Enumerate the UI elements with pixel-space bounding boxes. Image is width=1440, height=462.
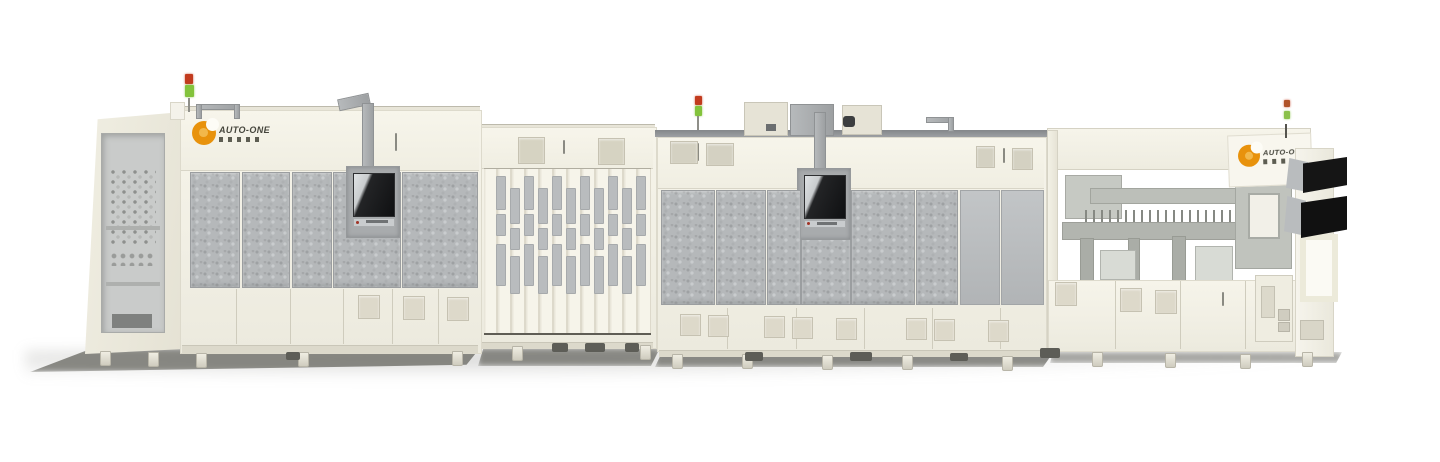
- panel-handle: [1003, 148, 1005, 163]
- slat-window: [538, 228, 548, 250]
- mesh-panel: [716, 190, 766, 305]
- machine-foot: [452, 351, 463, 366]
- slat-window: [524, 176, 534, 210]
- mesh-panel: [916, 190, 958, 305]
- side-window-rack: [110, 169, 156, 244]
- slat-window: [552, 244, 562, 286]
- signal-light-red: [1284, 100, 1290, 107]
- roof-motor: [843, 116, 855, 127]
- signal-light-red: [185, 74, 193, 84]
- top-vent: [706, 143, 734, 166]
- machine-foot: [902, 355, 913, 370]
- cabinet-seam: [290, 289, 291, 344]
- signal-tower-d: [1284, 100, 1292, 146]
- mesh-panel: [402, 172, 478, 288]
- side-window-equipment: [112, 314, 152, 328]
- machinery-window: [1248, 193, 1280, 239]
- slat-window: [608, 176, 618, 210]
- slat-window: [552, 214, 562, 236]
- door-button-plate: [1278, 309, 1290, 321]
- machinery-teeth-row: [1085, 210, 1250, 222]
- roof-pipe-c-leg: [948, 117, 954, 132]
- power-led: [356, 221, 359, 224]
- cabinet-vent: [934, 319, 955, 341]
- slat-window: [538, 188, 548, 224]
- monitor-arm-c: [814, 112, 826, 174]
- slat-window: [496, 176, 506, 210]
- slat-window: [636, 244, 646, 286]
- slat-window: [496, 214, 506, 236]
- signal-pole: [188, 98, 190, 112]
- caster: [850, 352, 872, 361]
- cabinet-seam: [438, 289, 439, 344]
- section-b-top-band: [482, 128, 653, 169]
- plain-panel: [960, 190, 1000, 305]
- monitor-screen-c: [804, 175, 846, 219]
- cabinet-vent: [836, 318, 857, 340]
- monitor-controls-c: [804, 220, 846, 228]
- brand-subtext-left: [219, 137, 261, 142]
- monitor-controls-a: [353, 218, 395, 227]
- machine-foot: [1302, 352, 1313, 367]
- machinery-box: [1195, 246, 1233, 282]
- monitor-arm-a: [362, 103, 374, 171]
- signal-pole: [1285, 124, 1287, 138]
- machinery-post: [1172, 236, 1186, 286]
- slat-window: [594, 256, 604, 294]
- machine-foot: [1165, 353, 1176, 368]
- cabinet-vent: [1155, 290, 1177, 314]
- equipment-door: [1255, 275, 1293, 342]
- slat-window: [566, 188, 576, 224]
- roof-pipe-a-leg: [196, 104, 202, 119]
- slat-window: [622, 256, 632, 294]
- mesh-panel: [292, 172, 332, 288]
- side-window-shelf: [106, 282, 160, 286]
- mesh-panel: [661, 190, 715, 305]
- hmi-monitor-a: [346, 166, 400, 238]
- cabinet-vent: [792, 317, 813, 339]
- brand-swirl-icon: [192, 121, 216, 145]
- cabinet-seam: [864, 308, 865, 349]
- tower-fitting: [1300, 320, 1324, 340]
- panel-handle: [1222, 292, 1224, 306]
- top-vent: [976, 146, 995, 168]
- caster: [625, 343, 639, 352]
- power-led: [807, 222, 810, 225]
- cabinet-vent: [988, 320, 1009, 342]
- hmi-monitor-c: [797, 168, 851, 240]
- slat-window: [622, 228, 632, 250]
- top-vent: [670, 141, 698, 164]
- cabinet-vent: [764, 316, 785, 338]
- slat-window: [636, 214, 646, 236]
- side-window-shelf: [106, 226, 160, 230]
- cabinet-vent: [447, 297, 469, 321]
- slat-window: [594, 188, 604, 224]
- signal-light-green: [695, 106, 702, 116]
- machine-foot: [512, 346, 523, 361]
- slat-window: [580, 214, 590, 236]
- slat-window: [608, 244, 618, 286]
- machine-foot: [1092, 352, 1103, 367]
- cabinet-vent: [680, 314, 701, 336]
- slat-window: [510, 188, 520, 224]
- caster: [552, 343, 568, 352]
- slat-window: [608, 214, 618, 236]
- slat-window: [538, 256, 548, 294]
- machine-foot: [640, 345, 651, 360]
- cabinet-seam: [932, 308, 933, 349]
- top-vent: [598, 138, 625, 165]
- signal-tower-c: [695, 96, 705, 134]
- side-window: [101, 133, 165, 333]
- caster: [745, 352, 763, 361]
- machine-foot: [196, 353, 207, 368]
- panel-handle: [563, 140, 565, 154]
- machine-foot: [148, 352, 159, 367]
- mesh-panel: [767, 190, 801, 305]
- roof-pipe-a-leg: [234, 104, 240, 119]
- brand-subtext-right: [1263, 158, 1289, 164]
- machinery-box: [1100, 250, 1136, 280]
- caster: [1040, 348, 1060, 358]
- slat-window: [496, 244, 506, 286]
- machine-foot: [822, 355, 833, 370]
- top-vent: [1012, 148, 1033, 170]
- monitor-screen-a: [353, 173, 395, 217]
- cabinet-seam: [343, 289, 344, 344]
- slat-window: [594, 228, 604, 250]
- caster: [950, 353, 968, 361]
- brand-swirl-icon: [1238, 144, 1261, 167]
- side-window-coils: [110, 252, 156, 266]
- slat-window: [566, 228, 576, 250]
- section-a-base: [182, 345, 478, 353]
- monitor-arm-mount-c: [790, 104, 834, 136]
- mesh-panel: [242, 172, 290, 288]
- slat-window: [580, 176, 590, 210]
- brand-name-left: AUTO-ONE: [219, 125, 270, 135]
- machinery-post: [1080, 238, 1094, 284]
- cabinet-seam: [1115, 281, 1116, 349]
- slat-window: [524, 214, 534, 236]
- signal-light-green: [185, 85, 194, 97]
- brand-logo-left: AUTO-ONE: [192, 121, 270, 145]
- cabinet-vent: [358, 295, 380, 319]
- door-button-plate: [1278, 322, 1290, 332]
- signal-pole: [697, 116, 699, 130]
- production-line-render: AUTO-ONE: [0, 0, 1440, 462]
- machine-foot: [100, 351, 111, 366]
- cabinet-vent: [1120, 288, 1142, 312]
- plain-panel: [1001, 190, 1044, 305]
- cabinet-seam: [1245, 281, 1246, 349]
- door-insert: [1261, 286, 1275, 318]
- slat-window: [510, 228, 520, 250]
- top-vent: [518, 137, 545, 164]
- roof-junction-box: [170, 102, 185, 120]
- mesh-panel: [190, 172, 240, 288]
- cabinet-vent: [1055, 282, 1077, 306]
- caster: [585, 343, 605, 352]
- slat-window: [510, 256, 520, 294]
- machine-foot: [672, 354, 683, 369]
- mesh-panel: [851, 190, 915, 305]
- slat-window: [636, 176, 646, 210]
- side-screen-lower: [1301, 196, 1347, 238]
- cabinet-vent: [906, 318, 927, 340]
- slat-window: [566, 256, 576, 294]
- slat-window: [622, 188, 632, 224]
- signal-light-green: [1284, 111, 1290, 119]
- caster: [286, 352, 300, 360]
- cabinet-vent: [708, 315, 729, 337]
- cabinet-seam: [1180, 281, 1181, 349]
- slat-window: [524, 244, 534, 286]
- machine-foot: [1240, 354, 1251, 369]
- machine-foot: [1002, 356, 1013, 371]
- panel-handle: [395, 133, 397, 151]
- signal-light-red: [695, 96, 702, 105]
- cabinet-seam: [392, 289, 393, 344]
- cabinet-seam: [236, 289, 237, 344]
- slat-window: [580, 244, 590, 286]
- section-a-side-face: [85, 112, 182, 354]
- roof-fitting: [766, 124, 776, 131]
- slat-window: [552, 176, 562, 210]
- cabinet-vent: [403, 296, 425, 320]
- screen-support-frame: [1300, 234, 1338, 302]
